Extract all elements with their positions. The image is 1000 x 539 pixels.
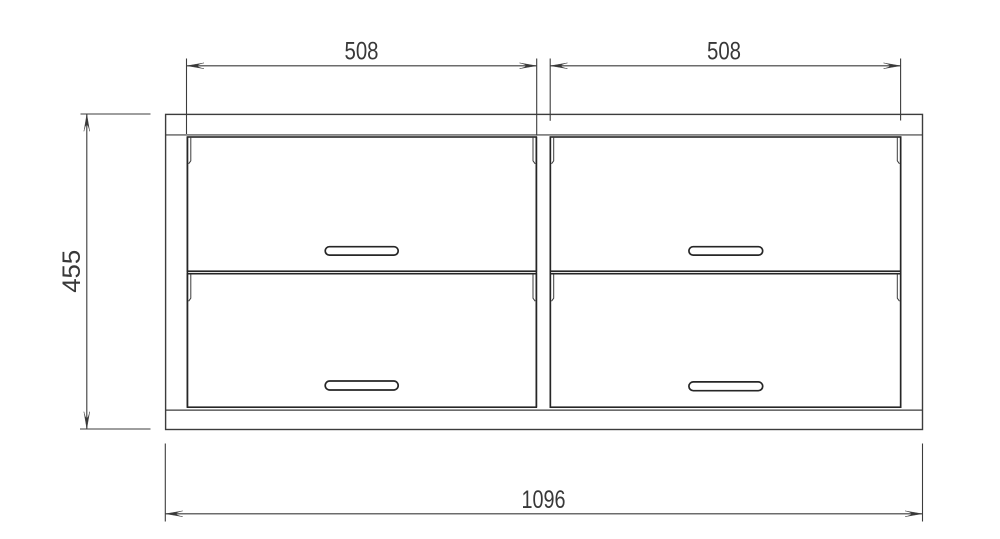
svg-text:455: 455 xyxy=(58,250,86,293)
svg-text:508: 508 xyxy=(345,38,379,66)
svg-text:508: 508 xyxy=(707,38,741,66)
svg-text:1096: 1096 xyxy=(522,486,566,514)
